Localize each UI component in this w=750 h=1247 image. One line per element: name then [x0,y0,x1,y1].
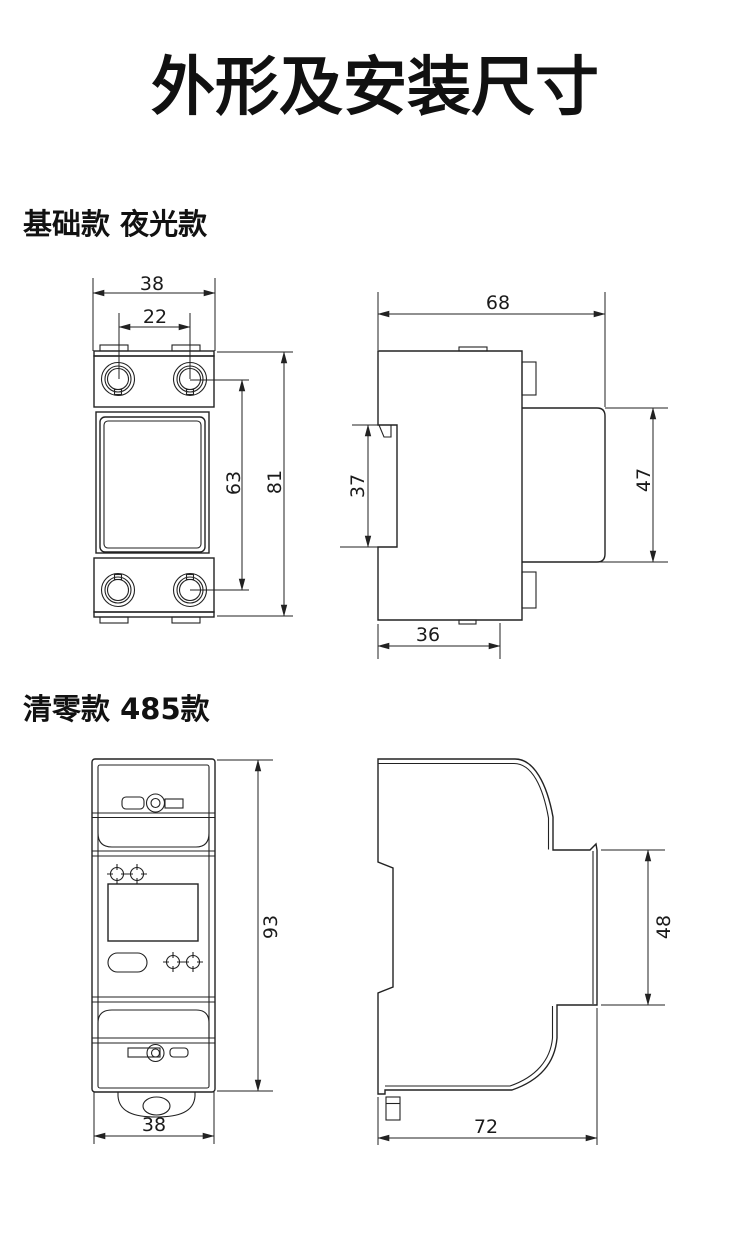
dimensions-side-basic: 68 37 47 36 [340,292,668,659]
dim-label-rail-slot: 37 [347,474,369,498]
latch-clip [522,572,536,608]
terminal-screws [102,363,207,607]
device-profile [378,759,597,1120]
lcd-display [108,884,198,941]
display-window [100,417,205,552]
cover-screw [152,1049,160,1057]
dimensions-side-reset485: 48 72 [378,850,675,1145]
seal-slot [122,797,144,809]
mount-tab [100,617,128,623]
mount-tab [172,345,200,351]
wire-cavity [98,1010,209,1038]
reset485-side-view: 48 72 [378,759,675,1145]
dim-label-depth: 72 [474,1116,498,1138]
device-body [92,759,215,1092]
rail-catch [379,425,391,437]
dim-label-terminal-span: 63 [223,471,245,495]
mount-tab [172,617,200,623]
dim-label-front-block: 47 [633,468,655,492]
seal-slot [170,1048,188,1057]
reset485-front-view: 93 38 [92,759,282,1144]
dimension-drawing: 38 22 63 81 68 37 47 36 [0,0,750,1247]
dim-label-base-depth: 36 [416,624,440,646]
dim-label-depth: 68 [486,292,510,314]
dim-label-height: 81 [264,470,286,494]
cover-screw [147,794,165,812]
wire-cavity [98,818,209,848]
bottom-terminal-cover [98,1010,209,1117]
dim-label-front-block: 48 [653,915,675,939]
button [183,952,203,972]
panel [107,864,203,972]
dim-label-height: 93 [260,915,282,939]
dim-label-width: 38 [142,1114,166,1136]
mount-tab [100,345,128,351]
button [127,864,147,884]
seal-slot [165,799,183,808]
din-clip-handle [143,1097,170,1115]
basic-side-view: 68 37 47 36 [340,292,668,659]
cover-screw [147,1045,164,1062]
din-slide-clip [386,1097,400,1120]
cover-screw [151,799,160,808]
device-profile [378,347,605,624]
button [107,864,127,884]
basic-front-view: 38 22 63 81 [93,273,293,623]
top-terminal-cover [98,794,209,847]
dim-label-terminal-pitch: 22 [143,306,167,328]
dim-label-width: 38 [140,273,164,295]
latch-clip [522,362,536,395]
oval-button [108,953,147,972]
button [163,952,183,972]
dimensions-front-basic: 38 22 63 81 [93,273,293,616]
